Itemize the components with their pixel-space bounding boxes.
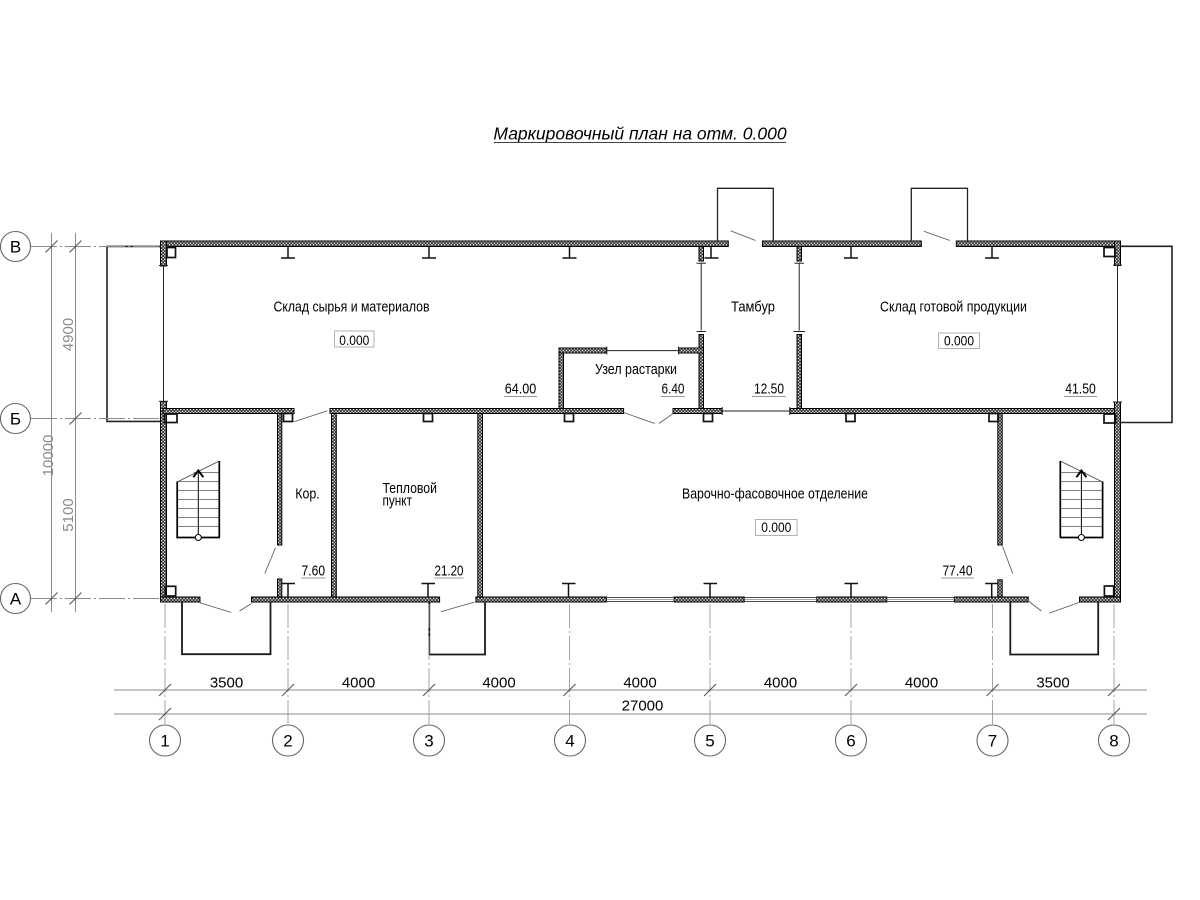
svg-text:3: 3 [424, 732, 433, 751]
svg-text:4000: 4000 [905, 675, 938, 692]
svg-text:5100: 5100 [60, 498, 77, 531]
svg-text:4: 4 [565, 732, 574, 751]
svg-text:10000: 10000 [40, 435, 57, 477]
svg-text:Варочно-фасовочное отделение: Варочно-фасовочное отделение [682, 486, 868, 503]
svg-text:1: 1 [160, 732, 169, 751]
svg-text:77.40: 77.40 [943, 563, 973, 580]
svg-text:3500: 3500 [1036, 675, 1069, 692]
svg-text:27000: 27000 [622, 698, 664, 715]
svg-text:Узел растарки: Узел растарки [595, 361, 677, 378]
svg-text:Кор.: Кор. [295, 486, 320, 503]
svg-text:Тамбур: Тамбур [731, 299, 775, 316]
svg-text:64.00: 64.00 [505, 381, 537, 398]
svg-text:0.000: 0.000 [339, 332, 369, 348]
svg-text:А: А [10, 590, 22, 609]
svg-text:0.000: 0.000 [761, 519, 791, 535]
svg-text:4000: 4000 [482, 675, 515, 692]
svg-text:7: 7 [988, 732, 997, 751]
svg-text:41.50: 41.50 [1065, 381, 1096, 398]
svg-text:2: 2 [283, 732, 292, 751]
svg-text:6.40: 6.40 [662, 381, 685, 398]
svg-text:8: 8 [1109, 732, 1118, 751]
svg-text:4900: 4900 [60, 318, 77, 351]
svg-text:Склад готовой продукции: Склад готовой продукции [880, 299, 1027, 316]
svg-text:4000: 4000 [764, 675, 797, 692]
svg-text:6: 6 [846, 732, 855, 751]
svg-text:Склад сырья и материалов: Склад сырья и материалов [274, 299, 430, 316]
svg-text:4000: 4000 [623, 675, 656, 692]
svg-text:5: 5 [705, 732, 714, 751]
svg-text:21.20: 21.20 [435, 563, 464, 580]
svg-text:В: В [10, 238, 21, 257]
svg-text:0.000: 0.000 [944, 333, 974, 349]
svg-text:12.50: 12.50 [754, 381, 784, 398]
svg-text:Маркировочный план на отм. 0.0: Маркировочный план на отм. 0.000 [493, 124, 786, 144]
svg-text:3500: 3500 [210, 675, 243, 692]
svg-text:7.60: 7.60 [302, 563, 326, 580]
svg-text:4000: 4000 [342, 675, 375, 692]
svg-text:пункт: пункт [383, 493, 413, 510]
svg-text:Б: Б [10, 410, 21, 429]
